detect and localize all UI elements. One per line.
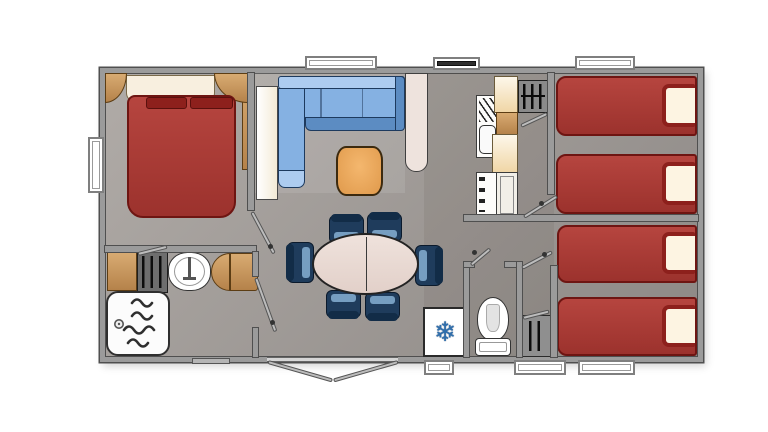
wall-master-bedroom-east	[248, 73, 254, 210]
door-handle-bathroom	[270, 320, 275, 325]
window-top-bedroom1	[575, 56, 635, 70]
door-handle-wc	[472, 250, 477, 255]
corner-sofa-left-arm	[278, 88, 305, 172]
vanity-cabinet-right	[211, 253, 258, 291]
wall-master-bedroom-south	[105, 246, 256, 252]
dining-chair-bottom-right	[365, 292, 400, 320]
corner-sofa-right-arm	[395, 76, 405, 131]
window-left-master-bedroom	[88, 137, 104, 193]
door-handle-bedroom2	[542, 252, 547, 257]
table-split-line	[366, 237, 368, 291]
double-bed	[127, 95, 236, 218]
oven-door-line	[500, 176, 514, 214]
wall-wc-west	[464, 262, 469, 357]
hall-closet	[522, 315, 551, 357]
wall-bathroom-east-lower	[253, 328, 258, 357]
entry-door-leaf-right	[333, 360, 399, 382]
dining-chair-right	[415, 245, 442, 286]
entry-step	[192, 358, 230, 364]
kitchen-worktop-upper	[494, 76, 518, 113]
window-bottom-wc	[514, 360, 566, 375]
hall-closet-shelf-bars	[529, 321, 544, 351]
toilet-tank-line	[479, 342, 507, 352]
vanity-cabinet-left	[107, 252, 137, 291]
twin-bed-3-pillow	[662, 232, 695, 274]
floor-plan: ❄	[0, 0, 768, 432]
dining-chair-left	[287, 242, 314, 283]
entry-door-leaf-left	[267, 360, 333, 382]
tall-cabinet	[256, 86, 278, 200]
sofa-seam	[362, 89, 364, 118]
cooker-knobs	[479, 177, 485, 212]
washbasin-tap	[188, 257, 191, 279]
towel-rack-bars	[142, 256, 163, 288]
shower-tray	[106, 291, 170, 356]
oven	[496, 172, 518, 218]
wall-bedroom2-west	[551, 266, 557, 357]
kitchen-hob	[518, 80, 548, 113]
window-bottom-dining	[424, 360, 454, 375]
coffee-table	[336, 146, 383, 196]
corner-sofa-arm-end	[278, 170, 305, 188]
corner-sofa-front-edge	[305, 117, 405, 131]
partition-column	[405, 73, 428, 172]
door-handle-master-bedroom	[268, 244, 273, 249]
cooker	[476, 172, 497, 217]
washbasin-tap-bar	[183, 277, 196, 280]
toilet-seat	[486, 304, 500, 332]
twin-bed-4-pillow	[662, 305, 695, 347]
kitchen-worktop-lower	[492, 134, 518, 173]
window-top-hall	[433, 57, 480, 70]
hob-grate-bars	[523, 84, 543, 109]
wall-wc-east	[517, 262, 522, 357]
hob-grate-crossbar	[521, 95, 545, 97]
kitchen-cabinet	[496, 112, 518, 135]
sofa-seam	[320, 89, 322, 118]
towel-rack-unit	[137, 251, 168, 293]
window-bottom-bedroom2	[578, 360, 635, 375]
door-handle-bedroom1	[539, 201, 544, 206]
window-top-living	[305, 56, 377, 70]
twin-bed-2-pillow	[662, 162, 695, 205]
wall-bathroom-east-upper	[253, 252, 258, 276]
toilet-bowl	[477, 297, 509, 341]
snowflake-icon: ❄	[425, 309, 465, 355]
fridge: ❄	[423, 307, 467, 357]
toilet-tank	[475, 338, 511, 356]
washbasin	[168, 252, 211, 291]
twin-bed-1-pillow	[662, 84, 695, 127]
dining-table	[312, 233, 419, 295]
vanity-divider	[229, 254, 231, 290]
entry-threshold	[267, 357, 398, 362]
bed-pillow-left	[146, 97, 187, 109]
shower-waves	[108, 293, 168, 354]
bed-pillow-right	[190, 97, 233, 109]
wall-kitchen-bedroom1	[548, 73, 554, 194]
wall-corridor-bedrooms	[464, 215, 698, 221]
